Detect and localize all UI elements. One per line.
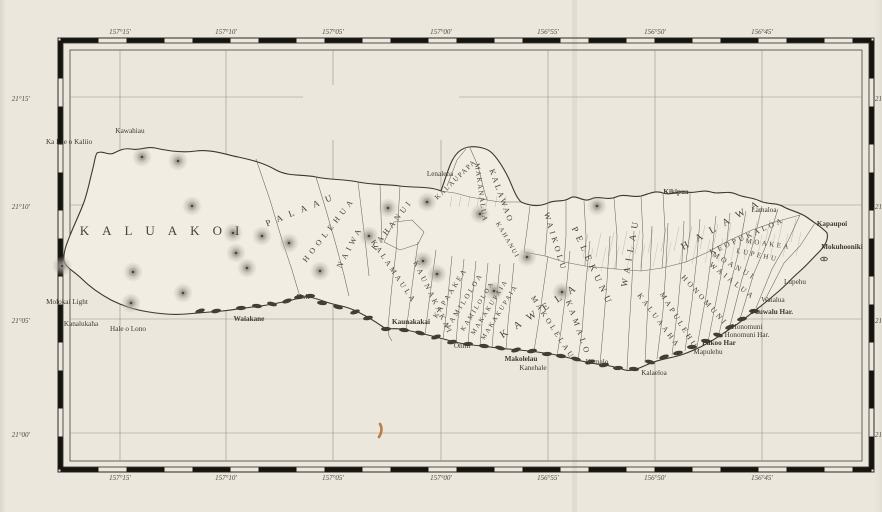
map-plate: Report U. S. F. C. 1901. (To face page 4… [0, 0, 882, 512]
place-label: Kanehale [519, 364, 546, 372]
district-label: KALUAKOI [80, 223, 253, 238]
place-label: Kamalo [586, 358, 609, 366]
place-label: Kapaupoi [817, 220, 847, 228]
hill-symbol-center [426, 201, 429, 204]
lon-label-bottom: 157°00' [430, 474, 452, 482]
place-label: Mapulehu [693, 348, 723, 356]
lat-label-right: 21°10' [875, 203, 882, 211]
place-label: Kikipua [663, 188, 689, 196]
lon-label-bottom: 156°45' [751, 474, 773, 482]
lon-label-top: 157°00' [430, 28, 452, 36]
place-label: Ka Lae o Kaliio [46, 138, 93, 146]
hill-symbol-center [141, 156, 144, 159]
hill-symbol-center [422, 260, 425, 263]
place-label: Honomuni Har. [725, 331, 770, 339]
lon-label-top: 156°45' [751, 28, 773, 36]
hill-symbol-center [182, 292, 185, 295]
place-label: Kawahiau [115, 127, 145, 135]
hill-symbol-center [261, 235, 264, 238]
lon-label-top: 157°10' [215, 28, 237, 36]
hill-symbol-center [61, 265, 64, 268]
hill-symbol-center [132, 271, 135, 274]
place-label: Onini [454, 342, 470, 350]
hill-symbol-center [368, 235, 371, 238]
place-label: Lamaloa [751, 206, 777, 214]
islet-dot [823, 258, 825, 260]
hill-symbol-center [130, 302, 133, 305]
place-label: Makolelau [505, 355, 538, 363]
place-label: Honomuni [732, 323, 763, 331]
hill-symbol-center [246, 267, 249, 270]
lon-label-top: 156°55' [537, 28, 559, 36]
lon-label-bottom: 157°05' [322, 474, 344, 482]
lon-label-top: 156°50' [644, 28, 666, 36]
place-label: Kaunakakai [392, 318, 430, 326]
hill-symbol-center [319, 270, 322, 273]
place-label: Lenalena [427, 170, 454, 178]
hill-symbol-center [288, 242, 291, 245]
hill-symbol-center [191, 205, 194, 208]
hill-symbol-center [526, 256, 529, 259]
place-label: Waialua [761, 296, 785, 304]
lat-label-left: 21°15' [12, 95, 31, 103]
place-label: Lupehu [784, 278, 806, 286]
place-label: Molokai Light [46, 298, 88, 306]
place-label: Pukoo Har [702, 339, 737, 347]
place-label: Waiakane [234, 315, 265, 323]
hill-symbol-center [596, 205, 599, 208]
lon-label-bottom: 156°55' [537, 474, 559, 482]
lon-label-bottom: 157°15' [109, 474, 131, 482]
hill-symbol-center [436, 273, 439, 276]
place-label: Hale o Lono [110, 325, 146, 333]
place-label: Kanalukaha [64, 320, 99, 328]
lat-label-right: 21°15' [875, 95, 882, 103]
lat-label-right: 21°05' [875, 317, 882, 325]
lat-label-left: 21°10' [12, 203, 31, 211]
lon-label-bottom: 157°10' [215, 474, 237, 482]
lon-label-top: 157°15' [109, 28, 131, 36]
map-canvas: 157°15'157°15'157°10'157°10'157°05'157°0… [0, 0, 882, 512]
hill-symbol-center [177, 160, 180, 163]
place-label: Kalaeloa [641, 369, 667, 377]
place-label: Pauwalu Har. [751, 308, 793, 316]
place-label: Holi [297, 293, 310, 301]
hill-symbol-center [235, 252, 238, 255]
lat-label-right: 21°00' [875, 431, 882, 439]
lon-label-bottom: 156°50' [644, 474, 666, 482]
hill-symbol-center [387, 207, 390, 210]
lat-label-left: 21°00' [12, 431, 31, 439]
place-label: Mokuhooniki [821, 243, 863, 251]
lon-label-top: 157°05' [322, 28, 344, 36]
lat-label-left: 21°05' [12, 317, 31, 325]
